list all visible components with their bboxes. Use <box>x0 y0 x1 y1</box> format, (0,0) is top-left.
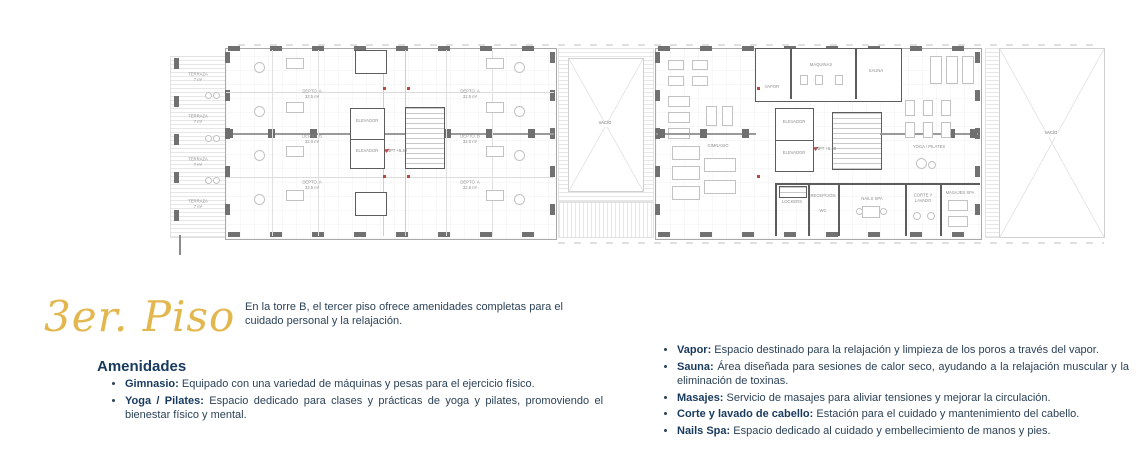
terrace-wall-piers <box>174 58 179 236</box>
tower-a-outline <box>225 48 557 240</box>
red-cross-marker <box>407 175 410 178</box>
elevator-core-a <box>350 108 385 169</box>
elevator-core-b <box>775 108 814 172</box>
room-label-yoga: YOGA / PILATES <box>913 145 945 150</box>
furniture-bed <box>486 146 504 157</box>
furniture-bed <box>486 58 504 69</box>
bath-fixture <box>835 75 843 85</box>
red-cross-marker <box>407 87 410 90</box>
terrace-table <box>205 92 212 99</box>
brochure-page: TERRAZA7 m² TERRAZA7 m² TERRAZA7 m² TERR… <box>0 0 1136 475</box>
red-cross-marker <box>757 87 760 90</box>
massage-bed <box>962 56 974 84</box>
void-left-hatch-strip <box>558 202 654 238</box>
gym-bench <box>704 158 736 172</box>
nails-desk <box>862 206 880 218</box>
level-label-npt: NPT +5.40 <box>387 149 407 154</box>
wet-area-wall <box>855 49 857 99</box>
tower-a-unit-wall <box>272 50 273 236</box>
massage-bed <box>930 56 942 84</box>
chair <box>880 208 887 215</box>
tower-a-bath-block <box>355 50 387 74</box>
terrace-table <box>213 177 220 184</box>
room-label-elevador: ELEVADOR <box>783 120 806 125</box>
yoga-mat <box>941 122 951 138</box>
amenity-item-corte: Corte y lavado de cabello: Estación para… <box>677 407 1129 422</box>
amenity-text: Estación para el cuidado y mantenimiento… <box>816 408 1079 420</box>
red-cross-marker <box>383 175 386 178</box>
tower-a-top-piers <box>228 46 552 51</box>
furniture-table <box>514 106 525 117</box>
terrace-table <box>213 135 220 142</box>
room-label-terraza: TERRAZA7 m² <box>188 73 208 84</box>
unit-label-depto-a: DEPTO. A32.5 m² <box>460 90 479 101</box>
bath-fixture <box>815 75 823 85</box>
amenity-label: Sauna: <box>677 361 714 373</box>
furniture-table <box>514 150 525 161</box>
room-label-masajes: MASAJES SPA <box>946 191 975 196</box>
furniture-bed <box>286 58 304 69</box>
amenity-label: Yoga / Pilates: <box>125 395 204 407</box>
dimension-line-bottom <box>558 242 1104 244</box>
unit-label-depto-a: DEPTO. A32.5 m² <box>460 181 479 192</box>
amenity-item-gimnasio: Gimnasio: Equipado con una variedad de m… <box>125 377 603 392</box>
amenity-label: Nails Spa: <box>677 425 730 437</box>
tower-a-right-piers <box>550 52 555 234</box>
tower-a-corridor-wall <box>226 133 554 135</box>
amenity-item-masajes: Masajes: Servicio de masajes para alivia… <box>677 391 1129 406</box>
chair <box>856 208 863 215</box>
tower-a-bottom-piers <box>228 232 552 237</box>
yoga-mat <box>905 122 915 138</box>
gym-bench <box>672 166 700 180</box>
furniture-bed <box>286 102 304 113</box>
room-label-corte-lavado: CORTE YLAVADO <box>914 194 933 205</box>
tower-b-right-piers <box>975 52 980 234</box>
furniture-bed <box>486 102 504 113</box>
salon-chair <box>927 212 935 220</box>
lockers-bench <box>779 186 807 198</box>
yoga-mat <box>905 100 915 116</box>
amenity-label: Vapor: <box>677 344 711 356</box>
furniture-table <box>514 194 525 205</box>
tower-b-bottom-piers <box>658 232 977 237</box>
tower-a-left-piers <box>225 52 230 234</box>
exercise-ball <box>928 161 936 169</box>
tower-a-unit-wall <box>446 50 447 236</box>
room-label-sauna: SAUNA <box>869 69 883 74</box>
amenity-label: Gimnasio: <box>125 378 179 390</box>
tower-a-unit-wall <box>492 50 493 236</box>
gym-equipment <box>692 60 708 70</box>
gym-machine <box>706 106 717 126</box>
terrace-corner-wall <box>179 235 181 255</box>
terrace-table <box>205 177 212 184</box>
wall-pier <box>700 129 707 138</box>
red-cross-marker <box>383 87 386 90</box>
intro-paragraph: En la torre B, el tercer piso ofrece ame… <box>245 300 563 328</box>
amenity-text: Servicio de masajes para aliviar tension… <box>727 392 1051 404</box>
wall-pier <box>970 129 977 138</box>
gym-equipment <box>668 76 684 86</box>
room-label-vacio: VACÍO <box>1044 131 1058 136</box>
amenity-item-vapor: Vapor: Espacio destinado para la relajac… <box>677 343 1129 358</box>
gym-bench <box>672 186 700 200</box>
room-label-terraza: TERRAZA7 m² <box>188 115 208 126</box>
furniture-table <box>514 62 525 73</box>
spa-room-wall <box>775 183 777 236</box>
room-label-terraza: TERRAZA7 m² <box>188 200 208 211</box>
gym-bench <box>704 180 736 194</box>
amenity-item-sauna: Sauna: Área diseñada para sesiones de ca… <box>677 360 1129 389</box>
yoga-mat <box>923 122 933 138</box>
amenity-text: Equipado con una variedad de máquinas y … <box>182 378 535 390</box>
amenities-list-left: Gimnasio: Equipado con una variedad de m… <box>110 377 603 425</box>
unit-label-depto-b: DEPTO. B32.0 m² <box>460 135 480 146</box>
room-label-elevador: ELEVADOR <box>783 151 806 156</box>
stairs-a <box>405 107 445 169</box>
page-title: 3er. Piso <box>44 292 235 341</box>
salon-chair <box>913 212 921 220</box>
amenities-list-right: Vapor: Espacio destinado para la relajac… <box>662 343 1129 440</box>
wet-area-wall <box>790 49 792 99</box>
yoga-mat <box>923 100 933 116</box>
room-label-recepcion: RECEPCIÓN <box>811 194 836 199</box>
tower-a-unit-line <box>226 92 554 93</box>
spa-room-wall <box>905 183 907 236</box>
unit-label-depto-a: DEPTO. A32.5 m² <box>302 181 321 192</box>
wall-pier <box>226 129 233 138</box>
wall-pier <box>528 129 535 138</box>
wall-pier <box>658 129 665 138</box>
unit-label-depto-b: DEPTO. B32.0 m² <box>302 135 322 146</box>
massage-bed <box>948 200 968 211</box>
gym-equipment <box>692 76 708 86</box>
furniture-table <box>254 194 265 205</box>
gym-treadmill <box>668 112 690 123</box>
room-label-wc: WC <box>820 209 827 214</box>
gym-treadmill <box>668 96 690 107</box>
room-label-maquinas: MÁQUINAS <box>810 63 832 68</box>
amenity-text: Espacio destinado para la relajación y l… <box>714 344 1099 356</box>
wall-pier <box>742 129 749 138</box>
room-label-vacio: VACÍO <box>598 121 612 126</box>
terrace-table <box>213 92 220 99</box>
amenity-label: Masajes: <box>677 392 723 404</box>
amenity-text: Espacio dedicado al cuidado y embellecim… <box>733 425 1050 437</box>
amenity-item-nails: Nails Spa: Espacio dedicado al cuidado y… <box>677 424 1129 439</box>
exercise-ball <box>916 158 927 169</box>
tower-b-left-piers <box>655 52 660 234</box>
room-label-nails: NAILS SPA <box>861 197 882 202</box>
bath-fixture <box>800 75 808 85</box>
room-label-vapor: VAPOR <box>765 85 779 90</box>
spa-room-wall <box>940 183 942 236</box>
level-label-npt: NPT +5.40 <box>816 147 836 152</box>
spa-room-wall <box>808 183 810 236</box>
gym-equipment <box>668 60 684 70</box>
spa-room-wall <box>838 183 840 236</box>
massage-bed <box>946 56 958 84</box>
amenity-label: Corte y lavado de cabello: <box>677 408 813 420</box>
yoga-mat <box>941 100 951 116</box>
furniture-table <box>254 150 265 161</box>
room-label-lockers: LOCKERS <box>782 200 802 205</box>
spa-row-wall <box>775 183 980 185</box>
room-label-elevador: ELEVADOR <box>356 149 379 154</box>
furniture-table <box>254 106 265 117</box>
room-label-gimnasio: GIMNASIO <box>707 144 728 149</box>
void-right-x-pattern <box>999 48 1105 238</box>
unit-label-depto-a: DEPTO. A32.5 m² <box>302 90 321 101</box>
wet-area-block <box>755 48 902 102</box>
furniture-bed <box>286 146 304 157</box>
stairs-b <box>832 112 882 170</box>
furniture-table <box>254 62 265 73</box>
room-label-terraza: TERRAZA7 m² <box>188 158 208 169</box>
tower-a-unit-line <box>226 177 554 178</box>
gym-machine <box>722 106 733 126</box>
terrace-table <box>205 135 212 142</box>
amenity-item-yoga: Yoga / Pilates: Espacio dedicado para cl… <box>125 394 603 423</box>
red-cross-marker <box>757 175 760 178</box>
gym-bench <box>672 146 700 160</box>
tower-a-bath-block <box>355 192 387 216</box>
amenity-text: Área diseñada para sesiones de calor sec… <box>677 361 1129 388</box>
furniture-bed <box>486 190 504 201</box>
amenities-heading: Amenidades <box>97 358 186 375</box>
furniture-bed <box>286 190 304 201</box>
room-label-elevador: ELEVADOR <box>356 119 379 124</box>
massage-bed <box>948 216 968 227</box>
